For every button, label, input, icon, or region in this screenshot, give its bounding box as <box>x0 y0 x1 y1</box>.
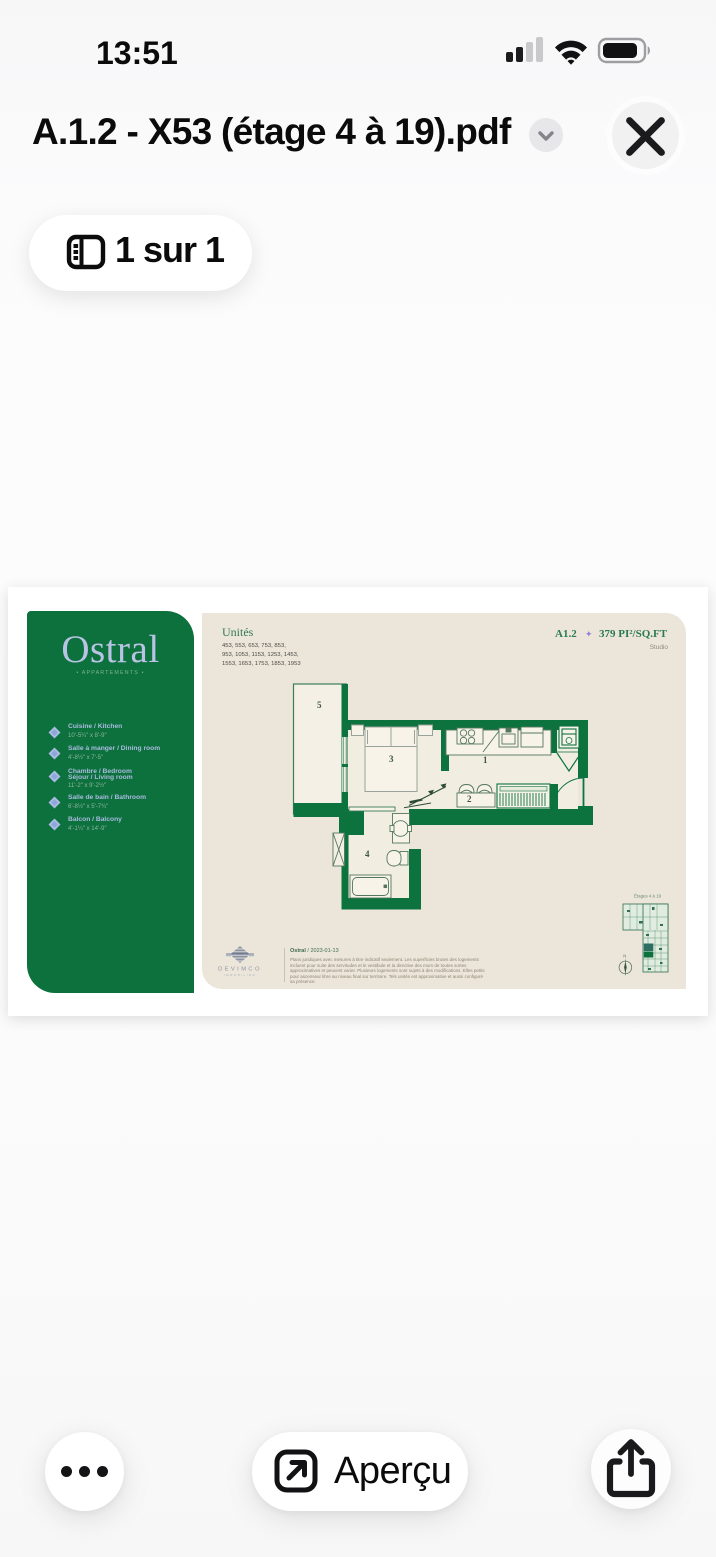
svg-text:Étages 4 à 19: Étages 4 à 19 <box>634 894 662 899</box>
svg-text:5: 5 <box>317 700 322 710</box>
svg-text:1: 1 <box>483 755 488 765</box>
svg-text:DEVIMCO: DEVIMCO <box>218 967 262 973</box>
svg-text:IMMOBILIER: IMMOBILIER <box>224 973 256 977</box>
svg-text:3: 3 <box>389 754 394 764</box>
svg-text:4: 4 <box>365 849 370 859</box>
svg-text:N: N <box>623 954 626 959</box>
svg-text:2: 2 <box>467 794 472 804</box>
